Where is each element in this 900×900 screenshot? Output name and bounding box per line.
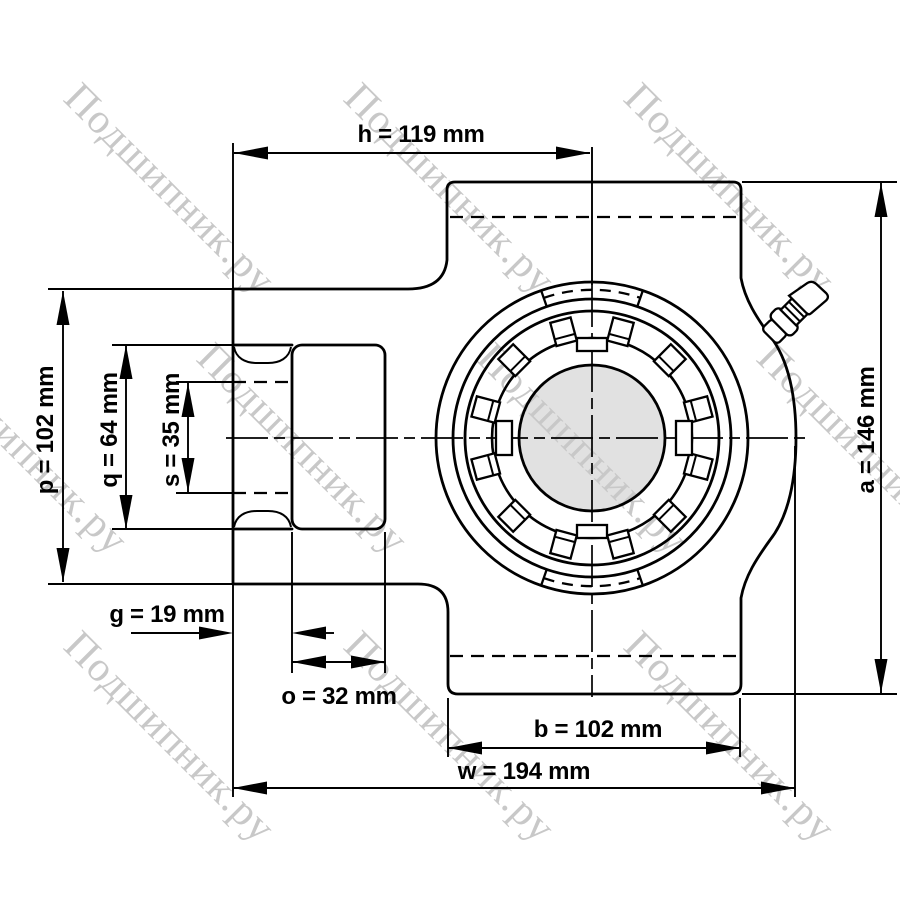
locking-tab — [684, 453, 713, 479]
dimension-label-s: s = 35 mm — [158, 373, 185, 487]
locking-tab — [550, 530, 576, 559]
drawing-page: Подшипник.ру Подшипник.ру Подшипник.ру П… — [0, 0, 900, 900]
technical-drawing: Подшипник.ру Подшипник.ру Подшипник.ру П… — [0, 0, 900, 900]
locking-tab — [607, 317, 633, 346]
dimension-label-w: w = 194 mm — [457, 758, 590, 785]
dimension-label-q: q = 64 mm — [96, 372, 123, 487]
dimension-label-h: h = 119 mm — [357, 121, 484, 148]
dimension-label-a: a = 146 mm — [853, 366, 880, 493]
dimension-label-p: p = 102 mm — [32, 366, 59, 494]
ring-notch-bottom — [577, 525, 607, 538]
ring-ear-left — [496, 421, 512, 455]
locking-tab — [471, 453, 500, 479]
locking-tab — [471, 396, 500, 422]
dimension-label-b: b = 102 mm — [534, 716, 662, 743]
locking-tab — [607, 530, 633, 559]
ring-ear-right — [676, 421, 692, 455]
dimension-label-o: o = 32 mm — [281, 683, 396, 710]
ring-notch-top — [577, 338, 607, 351]
locking-tab — [684, 396, 713, 422]
locking-tab — [550, 317, 576, 346]
dimension-label-g: g = 19 mm — [109, 601, 224, 628]
